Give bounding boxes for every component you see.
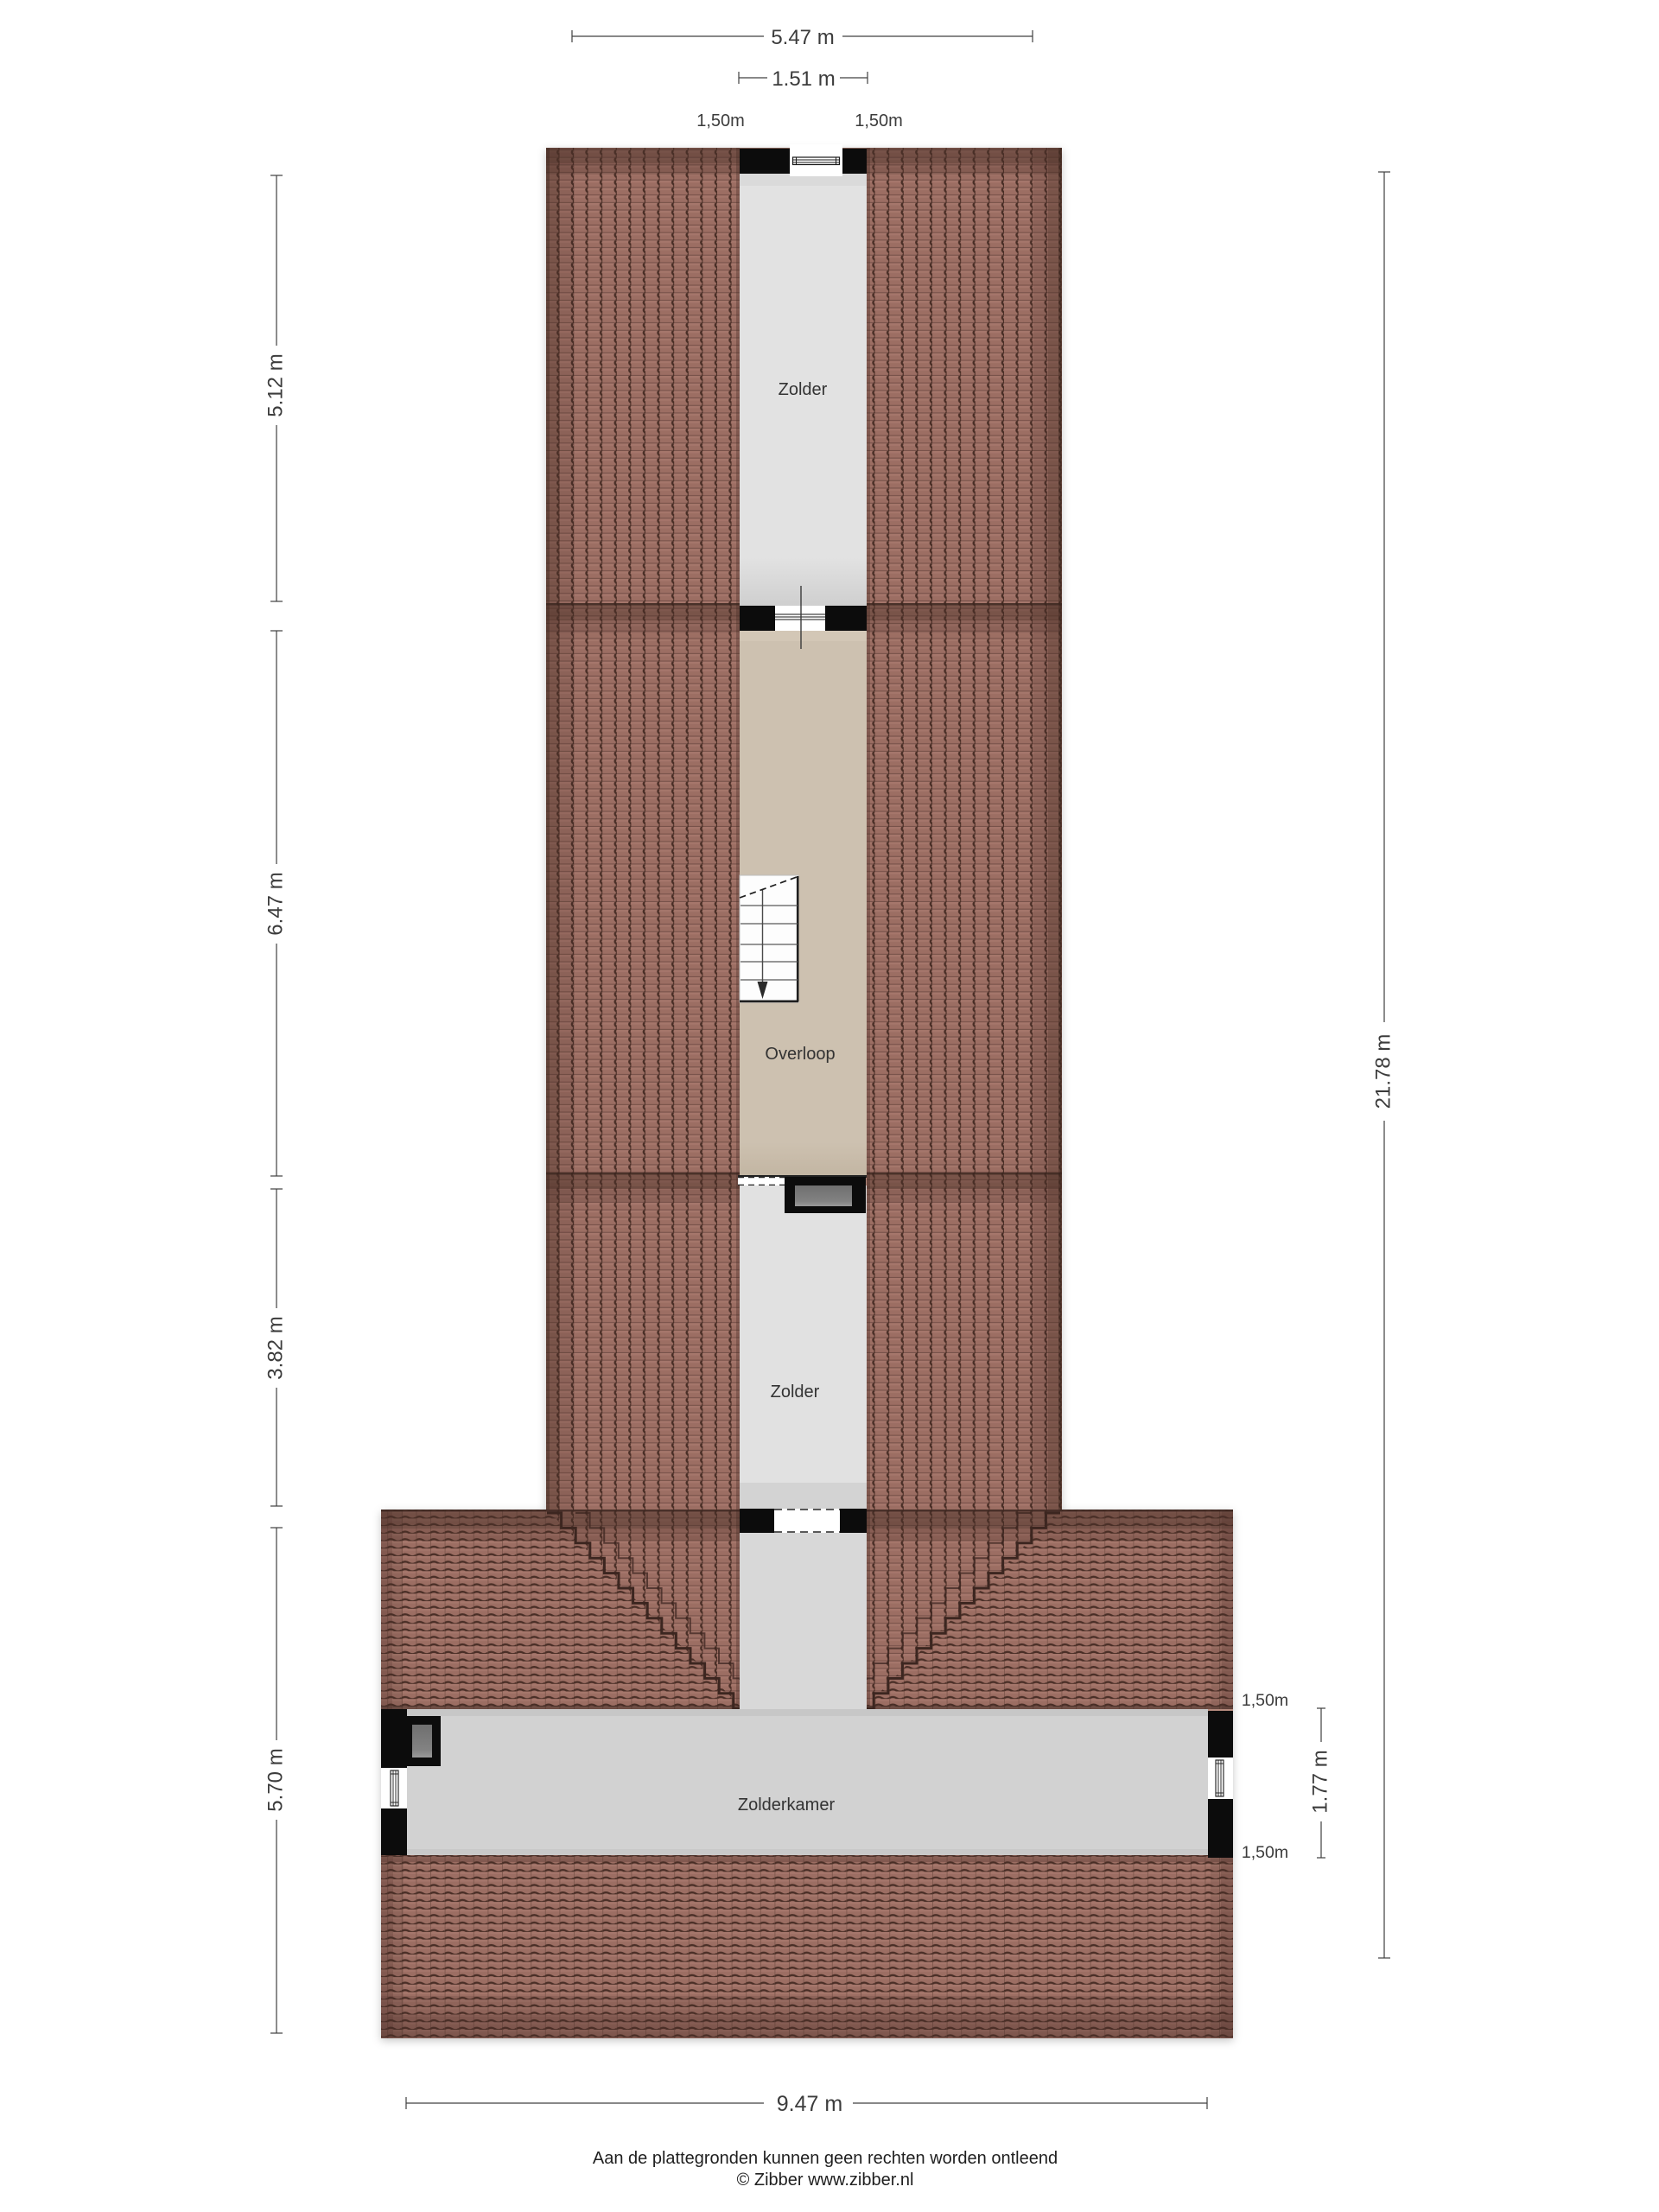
svg-text:1.77 m: 1.77 m: [1308, 1750, 1332, 1813]
svg-text:1.51 m: 1.51 m: [772, 67, 835, 91]
svg-text:Overloop: Overloop: [765, 1045, 835, 1064]
svg-text:1,50m: 1,50m: [1242, 1691, 1288, 1710]
svg-text:Aan de plattegronden kunnen ge: Aan de plattegronden kunnen geen rechten…: [593, 2149, 1058, 2168]
svg-text:5.47 m: 5.47 m: [771, 26, 834, 49]
svg-text:21.78 m: 21.78 m: [1371, 1034, 1395, 1109]
svg-text:1,50m: 1,50m: [696, 111, 745, 130]
svg-text:9.47 m: 9.47 m: [777, 2092, 842, 2116]
svg-text:5.70 m: 5.70 m: [264, 1748, 287, 1811]
svg-text:6.47 m: 6.47 m: [264, 872, 287, 935]
svg-text:Zolder: Zolder: [779, 380, 828, 399]
svg-text:Zolder: Zolder: [771, 1382, 820, 1402]
svg-text:1,50m: 1,50m: [855, 111, 903, 130]
svg-text:© Zibber www.zibber.nl: © Zibber www.zibber.nl: [737, 2171, 914, 2190]
svg-text:3.82 m: 3.82 m: [264, 1316, 287, 1379]
svg-text:1,50m: 1,50m: [1242, 1843, 1288, 1862]
svg-text:5.12 m: 5.12 m: [264, 353, 287, 416]
svg-text:Zolderkamer: Zolderkamer: [738, 1796, 836, 1815]
